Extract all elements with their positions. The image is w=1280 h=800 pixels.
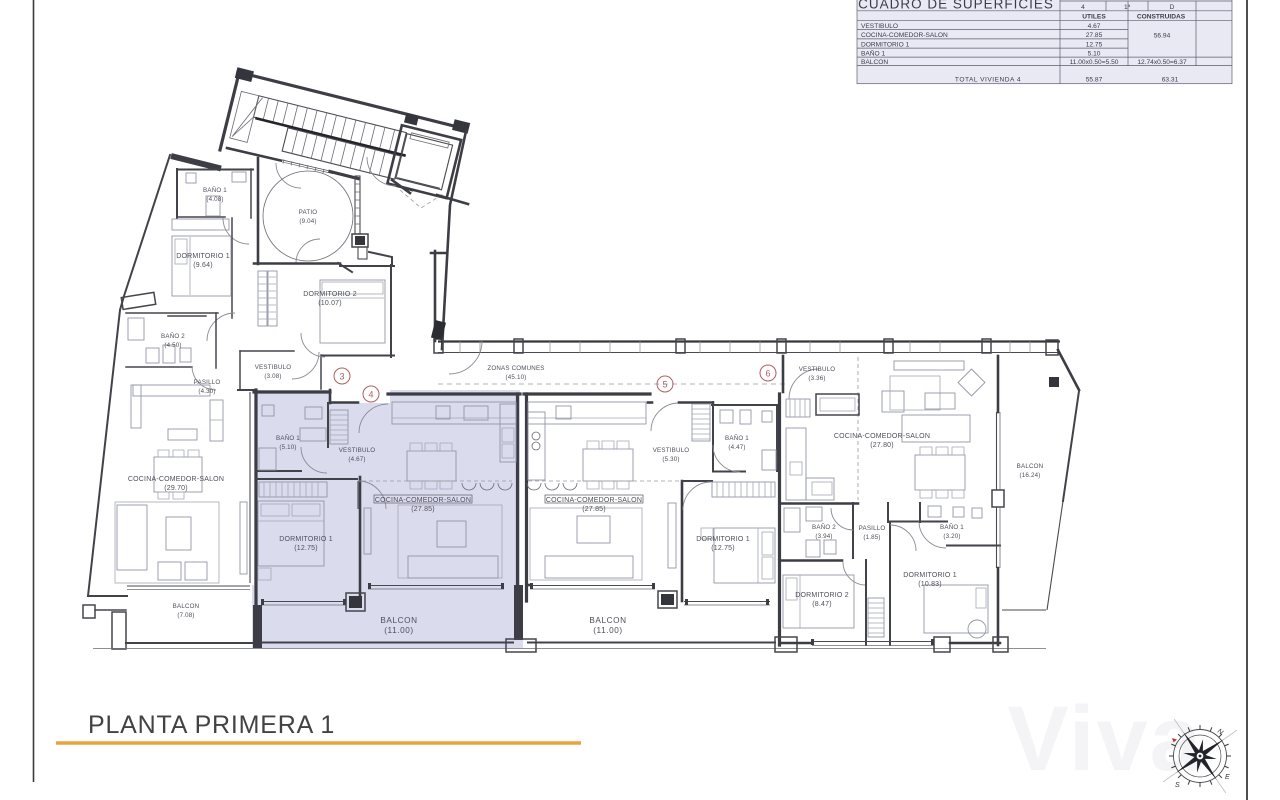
svg-text:COCINA-COMEDOR-SALON: COCINA-COMEDOR-SALON (375, 497, 471, 504)
svg-text:DORMITORIO 1: DORMITORIO 1 (696, 536, 750, 543)
svg-text:BALCON: BALCON (380, 616, 417, 625)
svg-text:12.75: 12.75 (1086, 42, 1103, 49)
svg-text:BAÑO 2: BAÑO 2 (161, 333, 185, 340)
svg-text:BAÑO 1: BAÑO 1 (940, 524, 964, 531)
svg-text:BALCON: BALCON (173, 603, 200, 610)
svg-text:(29.70): (29.70) (164, 485, 188, 492)
svg-text:ZONAS COMUNES: ZONAS COMUNES (487, 365, 544, 372)
svg-text:(12.75): (12.75) (294, 545, 318, 552)
svg-text:63.31: 63.31 (1162, 77, 1179, 84)
svg-text:5.10: 5.10 (1088, 51, 1101, 58)
svg-text:PASILLO: PASILLO (194, 379, 221, 386)
svg-text:VESTIBULO: VESTIBULO (653, 447, 690, 454)
svg-text:COCINA-COMEDOR-SALON: COCINA-COMEDOR-SALON (546, 497, 642, 504)
svg-text:(10.83): (10.83) (918, 581, 942, 588)
svg-text:(4.67): (4.67) (348, 456, 365, 463)
svg-text:(27.80): (27.80) (870, 442, 894, 449)
svg-text:55.87: 55.87 (1086, 77, 1103, 84)
svg-text:TOTAL VIVIENDA 4: TOTAL VIVIENDA 4 (955, 77, 1021, 84)
svg-text:(11.00): (11.00) (593, 626, 623, 635)
svg-text:PLANTA PRIMERA 1: PLANTA PRIMERA 1 (88, 711, 335, 739)
svg-text:DORMITORIO 1: DORMITORIO 1 (176, 253, 230, 260)
svg-text:(3.94): (3.94) (815, 533, 832, 540)
svg-text:(27.85): (27.85) (411, 506, 435, 513)
svg-text:BAÑO 1: BAÑO 1 (861, 49, 886, 58)
svg-text:(4.08): (4.08) (206, 196, 223, 203)
svg-text:BALCON: BALCON (1017, 463, 1044, 470)
svg-text:(3.36): (3.36) (808, 375, 825, 382)
svg-text:1ª: 1ª (1124, 4, 1131, 11)
svg-text:(5.30): (5.30) (662, 456, 679, 463)
svg-text:PATIO: PATIO (299, 209, 318, 216)
svg-text:(9.04): (9.04) (299, 218, 316, 225)
svg-text:(16.24): (16.24) (1019, 472, 1040, 479)
svg-text:COCINA-COMEDOR-SALON: COCINA-COMEDOR-SALON (128, 476, 224, 483)
svg-text:CONSTRUIDAS: CONSTRUIDAS (1137, 14, 1186, 21)
svg-text:3: 3 (339, 372, 344, 382)
svg-text:BAÑO 1: BAÑO 1 (276, 435, 300, 442)
svg-text:(45.10): (45.10) (505, 374, 526, 381)
svg-text:DORMITORIO 2: DORMITORIO 2 (303, 291, 357, 298)
svg-text:DORMITORIO 2: DORMITORIO 2 (795, 592, 849, 599)
svg-text:CUADRO DE SUPERFICIES: CUADRO DE SUPERFICIES (858, 0, 1054, 12)
svg-text:(10.07): (10.07) (318, 300, 342, 307)
svg-text:VESTIBULO: VESTIBULO (799, 366, 836, 373)
svg-text:S: S (1175, 782, 1180, 789)
svg-text:(4.50): (4.50) (164, 342, 181, 349)
svg-text:DORMITORIO 1: DORMITORIO 1 (861, 42, 910, 49)
svg-text:(4.47): (4.47) (728, 444, 745, 451)
svg-text:4: 4 (1081, 4, 1085, 11)
svg-text:(27.85): (27.85) (582, 506, 606, 513)
svg-text:COCINA-COMEDOR-SALON: COCINA-COMEDOR-SALON (861, 32, 948, 39)
svg-text:COCINA-COMEDOR-SALON: COCINA-COMEDOR-SALON (834, 433, 930, 440)
svg-text:BALCON: BALCON (861, 59, 888, 66)
svg-text:(8.47): (8.47) (812, 601, 832, 608)
svg-text:5: 5 (662, 380, 667, 390)
svg-text:12.74x0.50=6.37: 12.74x0.50=6.37 (1137, 59, 1187, 66)
svg-text:(1.85): (1.85) (863, 534, 880, 541)
svg-text:VESTIBULO: VESTIBULO (861, 23, 898, 30)
svg-text:BAÑO 1: BAÑO 1 (203, 187, 227, 194)
svg-text:VESTIBULO: VESTIBULO (255, 364, 292, 371)
svg-text:DORMITORIO 1: DORMITORIO 1 (903, 572, 957, 579)
svg-text:D: D (1170, 4, 1175, 11)
svg-text:PASILLO: PASILLO (859, 525, 886, 532)
svg-text:56.94: 56.94 (1154, 33, 1171, 40)
svg-text:4: 4 (368, 390, 373, 400)
svg-text:(3.08): (3.08) (264, 373, 281, 380)
svg-text:BAÑO 1: BAÑO 1 (725, 435, 749, 442)
svg-text:(5.10): (5.10) (279, 444, 296, 451)
svg-text:4.67: 4.67 (1088, 23, 1101, 30)
svg-text:BAÑO 2: BAÑO 2 (812, 524, 836, 531)
svg-text:E: E (1225, 774, 1230, 781)
svg-text:(4.30): (4.30) (198, 388, 215, 395)
svg-text:BALCON: BALCON (589, 616, 626, 625)
svg-text:(3.20): (3.20) (943, 533, 960, 540)
svg-text:(7.08): (7.08) (177, 612, 194, 619)
svg-text:6: 6 (765, 369, 770, 379)
svg-text:(12.75): (12.75) (711, 545, 735, 552)
svg-text:VESTIBULO: VESTIBULO (339, 447, 376, 454)
svg-text:(9.64): (9.64) (193, 262, 213, 269)
svg-text:DORMITORIO 1: DORMITORIO 1 (279, 536, 333, 543)
svg-text:UTILES: UTILES (1082, 14, 1106, 21)
svg-text:27.85: 27.85 (1086, 32, 1103, 39)
svg-text:11.00x0.50=5.50: 11.00x0.50=5.50 (1070, 59, 1119, 66)
svg-text:(11.00): (11.00) (384, 626, 414, 635)
